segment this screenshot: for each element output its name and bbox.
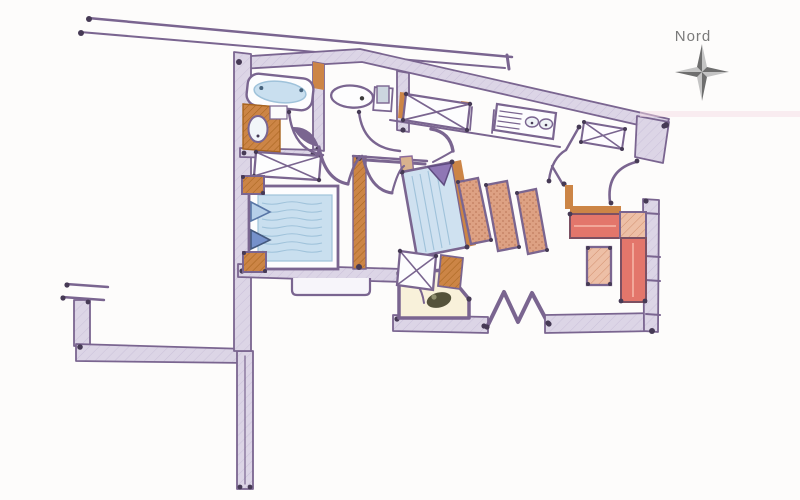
dot <box>450 160 455 165</box>
dot <box>78 30 84 36</box>
sofa-back-rail <box>570 206 621 214</box>
compass: Nord <box>640 28 800 117</box>
dot <box>238 485 243 490</box>
dot <box>619 299 624 304</box>
dot <box>582 120 586 124</box>
middle-beds <box>397 160 549 291</box>
orange-wall-stub <box>565 185 573 209</box>
dot <box>545 248 549 252</box>
window-tick <box>645 280 660 281</box>
balcony-rail <box>292 278 370 295</box>
dot <box>398 249 402 253</box>
dot <box>401 118 405 122</box>
nightstand <box>243 252 266 272</box>
dot <box>357 110 361 114</box>
sink-drain <box>531 122 534 125</box>
dot <box>609 201 614 206</box>
door-crescent-arc <box>431 129 453 151</box>
dot <box>263 269 267 273</box>
dot <box>434 254 438 258</box>
bottom-wall-right <box>545 313 657 333</box>
coffee-table <box>587 247 611 285</box>
dot <box>64 282 69 287</box>
dot <box>241 175 245 179</box>
sink-drain <box>545 124 548 127</box>
living-room <box>565 185 647 303</box>
washbasin-drain <box>257 135 260 138</box>
dot <box>356 264 362 270</box>
window-tick <box>646 314 660 315</box>
dot <box>242 251 246 255</box>
dot <box>456 180 460 184</box>
dot <box>261 191 265 195</box>
dot <box>620 147 624 151</box>
dot <box>242 151 247 156</box>
compass-label: Nord <box>675 28 712 45</box>
dot <box>484 183 488 187</box>
dot <box>248 485 253 490</box>
entry-zigzag <box>487 292 548 327</box>
dot <box>86 300 91 305</box>
nightstand <box>242 176 264 194</box>
exterior-walls-bottom-left <box>60 282 253 489</box>
dot <box>586 282 590 286</box>
dot <box>517 245 521 249</box>
wall <box>74 300 90 346</box>
star-ray <box>702 72 707 101</box>
wall-tick <box>66 284 108 287</box>
dot <box>579 140 583 144</box>
dot <box>468 102 472 106</box>
dot <box>547 179 552 184</box>
dot <box>643 198 648 203</box>
dot <box>635 159 640 164</box>
wc-door-arc <box>359 112 400 151</box>
dot <box>577 125 582 130</box>
dot <box>465 245 470 250</box>
wall-stub <box>377 86 389 103</box>
dot <box>60 295 65 300</box>
door-crescent-arc <box>433 151 453 162</box>
dot <box>649 328 655 334</box>
compass-star-icon <box>675 44 729 101</box>
dot <box>623 127 627 131</box>
wall <box>76 344 248 363</box>
dot <box>568 212 573 217</box>
dot <box>236 59 242 65</box>
dot <box>643 299 648 304</box>
kitchen-door-leaf <box>566 127 579 150</box>
dot <box>608 246 612 250</box>
floor-plan-drawing: Nord <box>0 0 800 500</box>
vanity-shelf <box>270 106 287 119</box>
wall-end-cap <box>507 55 509 69</box>
blob-highlight <box>431 294 436 299</box>
kitchen-door-orange-tick <box>552 166 562 183</box>
star-ray <box>697 72 702 101</box>
dot <box>586 246 590 250</box>
dot <box>254 150 258 154</box>
dot <box>77 344 83 350</box>
dot <box>287 110 291 114</box>
pink-smudge <box>640 111 800 117</box>
living-door-arc <box>610 162 636 202</box>
dot <box>465 128 469 132</box>
window-tick <box>645 256 660 257</box>
dot <box>515 191 519 195</box>
hall-swing-arc <box>319 147 348 184</box>
dot <box>86 16 92 22</box>
dot <box>546 321 551 326</box>
toilet-bowl <box>330 84 373 109</box>
divider-orange-cap <box>313 62 324 90</box>
dot <box>466 296 471 301</box>
dot <box>489 238 493 242</box>
orange-stool <box>438 255 463 289</box>
washbasin <box>249 116 268 142</box>
dot <box>661 123 666 128</box>
dot <box>404 92 408 96</box>
hall-orange-wall <box>353 156 366 269</box>
floor-plan-canvas: Nord <box>0 0 800 500</box>
dot <box>317 178 321 182</box>
dot <box>608 282 612 286</box>
dot <box>400 127 405 132</box>
dot <box>484 324 489 329</box>
sofa-corner-seat <box>620 212 646 238</box>
mattress-mat <box>517 189 547 254</box>
